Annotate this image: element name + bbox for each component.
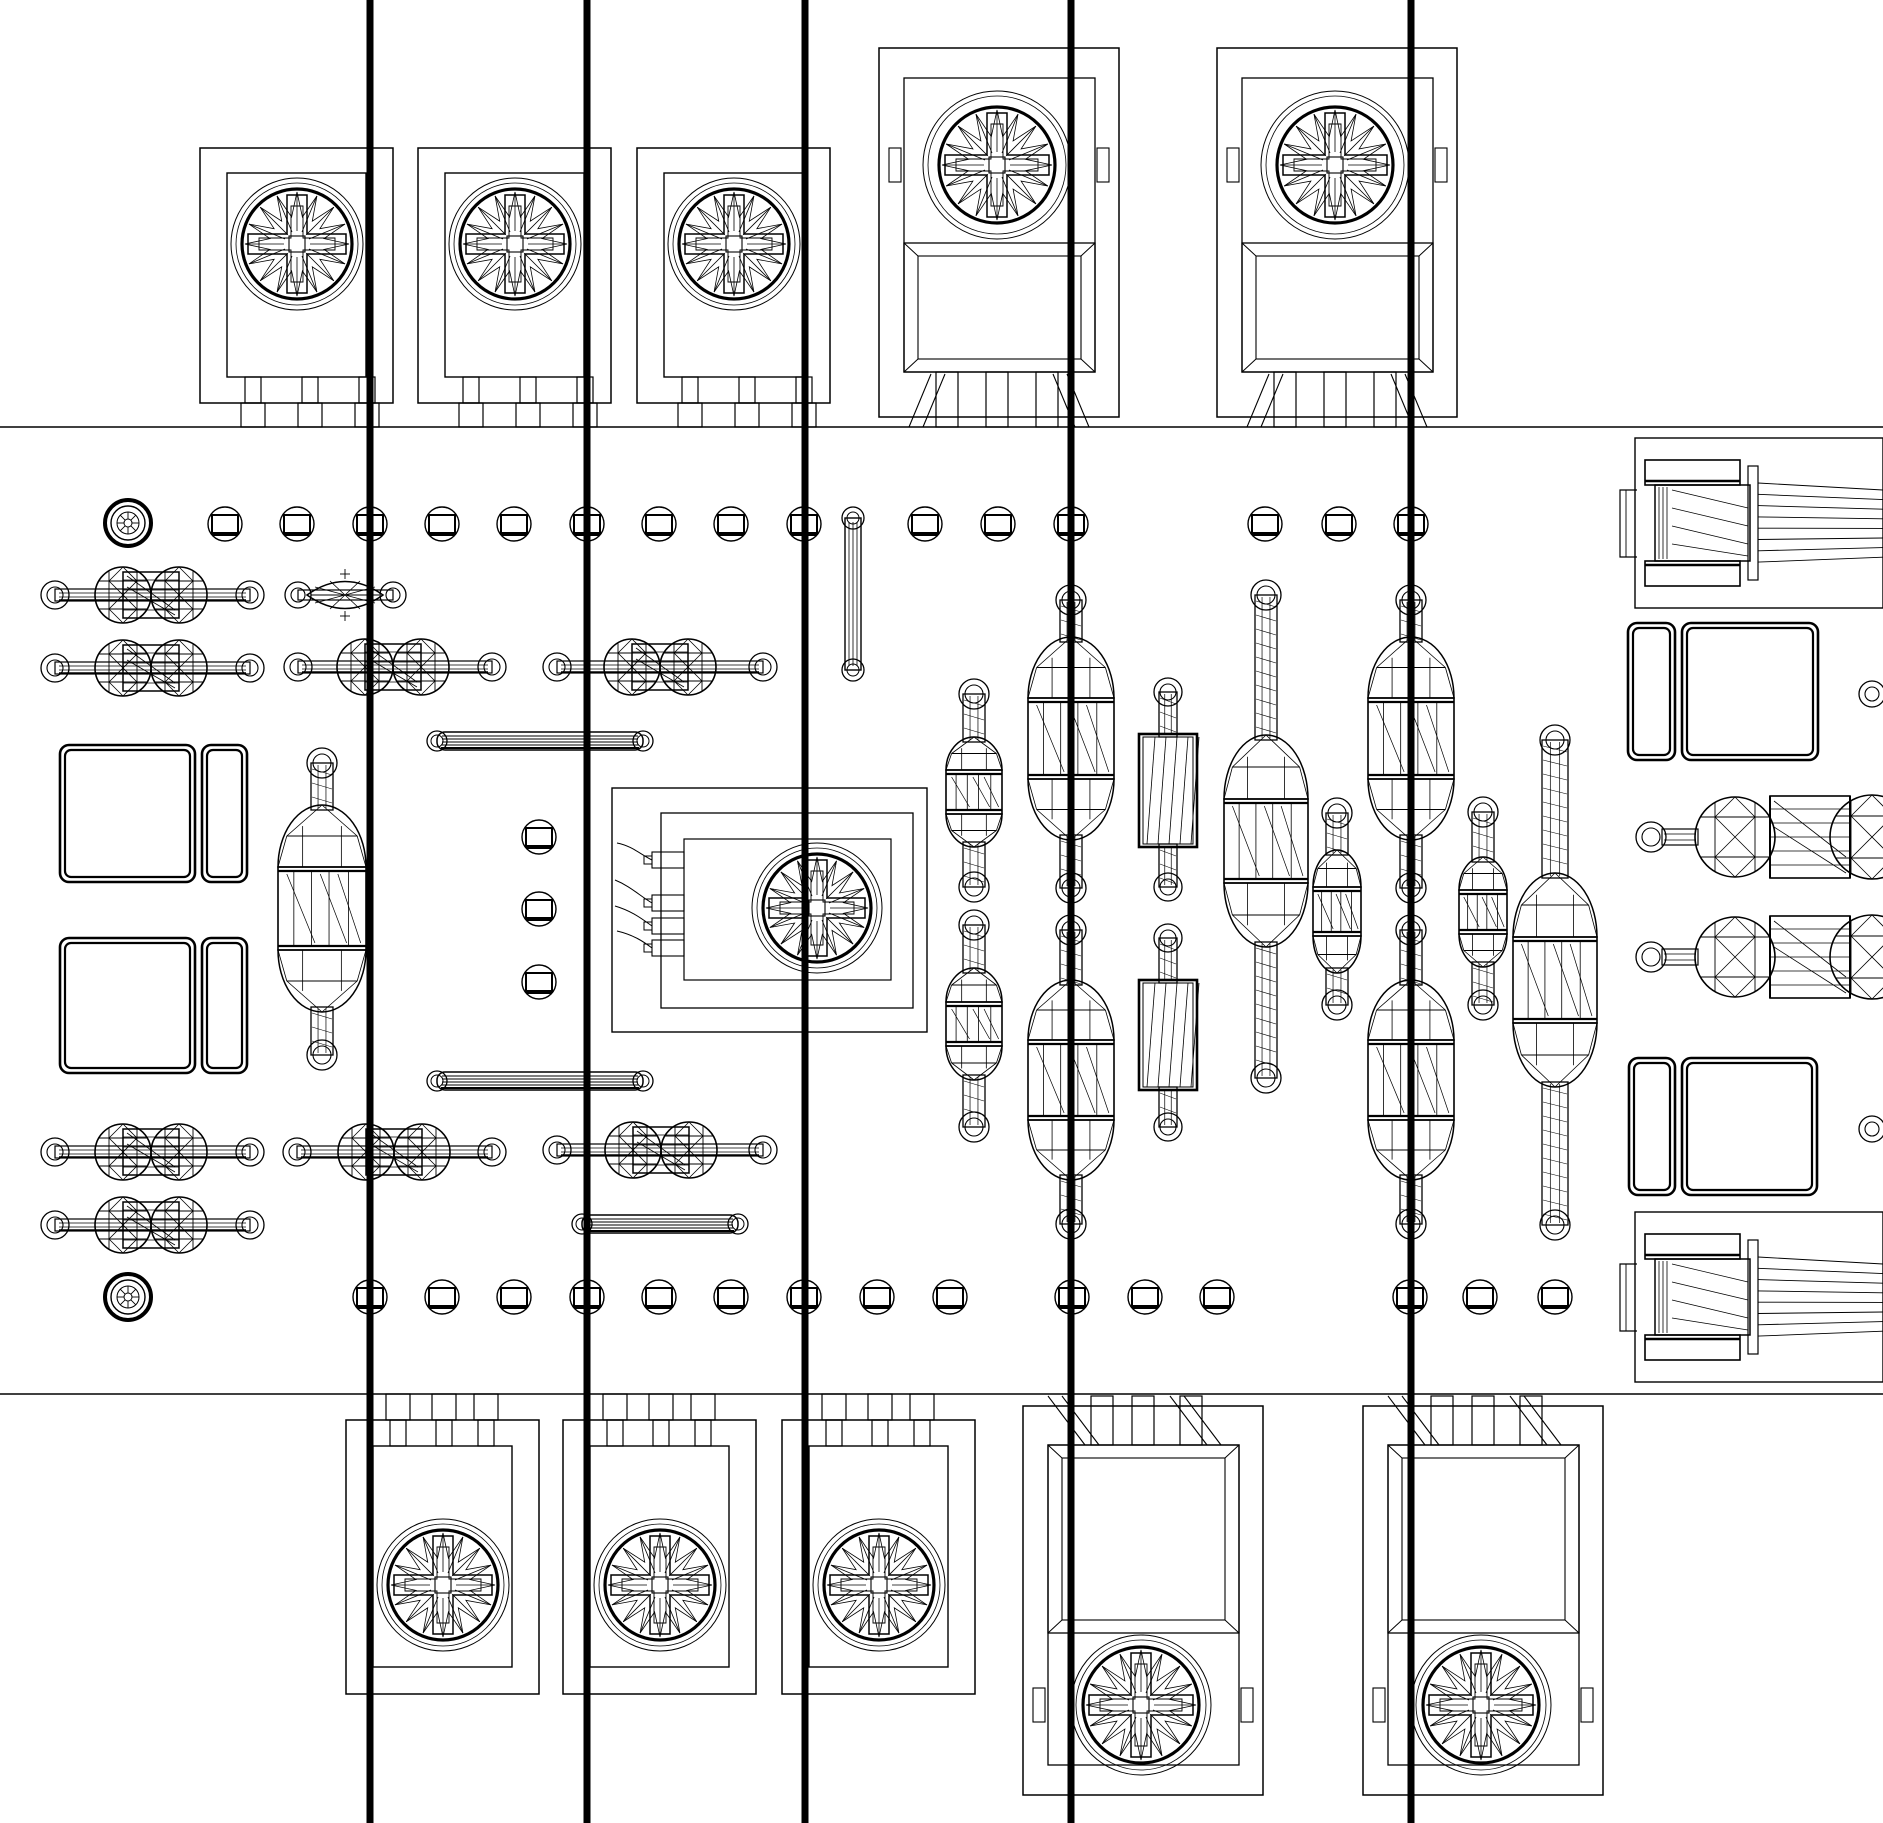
- solder-pad: [1859, 681, 1883, 707]
- cad-canvas: [0, 0, 1883, 1823]
- potentiometer-large: [1363, 1396, 1603, 1795]
- solder-pad: [280, 507, 314, 541]
- mounting-hole: [105, 1274, 151, 1320]
- solder-pad: [522, 820, 556, 854]
- wire-connector: [1620, 438, 1883, 608]
- off-board-potentiometers: [200, 48, 1603, 1795]
- film-capacitor-box: [1139, 924, 1199, 1141]
- solder-pad: [1538, 1280, 1572, 1314]
- on-board-components: [41, 438, 1883, 1382]
- axial-resistor: [41, 1197, 264, 1253]
- solder-pad: [642, 1280, 676, 1314]
- capacitor-horizontal: [1636, 915, 1883, 999]
- potentiometer-small: [637, 148, 830, 427]
- film-capacitor-box: [1139, 678, 1199, 901]
- solder-pad: [714, 1280, 748, 1314]
- solder-pad: [981, 507, 1015, 541]
- jumper-rod: [427, 731, 653, 751]
- axial-resistor: [543, 1122, 777, 1178]
- electrolytic-capacitor-large: [278, 748, 366, 1070]
- pcb-top-view-drawing: [0, 0, 1883, 1823]
- axial-resistor: [283, 1124, 506, 1180]
- circuit-board: [0, 427, 1883, 1394]
- potentiometer-large: [1217, 48, 1457, 427]
- solder-pad: [908, 507, 942, 541]
- potentiometer-small: [200, 148, 393, 427]
- solder-pad: [522, 892, 556, 926]
- trim-potentiometer-module: [612, 788, 927, 1032]
- solder-pad: [1200, 1280, 1234, 1314]
- potentiometer-small: [346, 1394, 539, 1694]
- electrolytic-capacitor-medium: [946, 910, 1002, 1142]
- solder-pad: [208, 507, 242, 541]
- axial-resistor: [41, 567, 264, 623]
- diode-lens: [285, 569, 406, 621]
- axial-resistor: [284, 639, 506, 695]
- solder-pad: [933, 1280, 967, 1314]
- capacitor-horizontal: [1636, 795, 1883, 879]
- smd-pad-pair: [60, 745, 247, 882]
- smd-pad-pair: [60, 938, 247, 1073]
- smd-pad-pair: [1628, 623, 1818, 760]
- solder-pad: [1248, 507, 1282, 541]
- axial-resistor: [41, 640, 264, 696]
- jumper-rod: [572, 1214, 748, 1234]
- potentiometer-large: [879, 48, 1119, 427]
- potentiometer-small: [782, 1394, 975, 1694]
- solder-pad: [714, 507, 748, 541]
- wire-connector: [1620, 1212, 1883, 1382]
- axial-resistor: [543, 639, 777, 695]
- solder-pad: [497, 1280, 531, 1314]
- potentiometer-small: [563, 1394, 756, 1694]
- electrolytic-capacitor-small: [1459, 797, 1507, 1020]
- electrolytic-capacitor-small: [1313, 798, 1361, 1020]
- electrolytic-capacitor-large: [1224, 580, 1308, 1093]
- solder-pad: [1463, 1280, 1497, 1314]
- solder-pad: [497, 507, 531, 541]
- electrolytic-capacitor-medium: [946, 679, 1002, 902]
- smd-pad-pair: [1629, 1058, 1817, 1195]
- solder-pad: [860, 1280, 894, 1314]
- solder-pad: [522, 965, 556, 999]
- solder-pad: [425, 1280, 459, 1314]
- mounting-hole: [105, 500, 151, 546]
- jumper-rod: [427, 1071, 653, 1091]
- via-link: [842, 507, 864, 681]
- potentiometer-large: [1023, 1396, 1263, 1795]
- solder-pad: [642, 507, 676, 541]
- solder-pad: [1128, 1280, 1162, 1314]
- axial-resistor: [41, 1124, 264, 1180]
- solder-pad: [425, 507, 459, 541]
- solder-pad: [1859, 1116, 1883, 1142]
- potentiometer-small: [418, 148, 611, 427]
- electrolytic-capacitor-large: [1513, 725, 1597, 1240]
- solder-pad: [1322, 507, 1356, 541]
